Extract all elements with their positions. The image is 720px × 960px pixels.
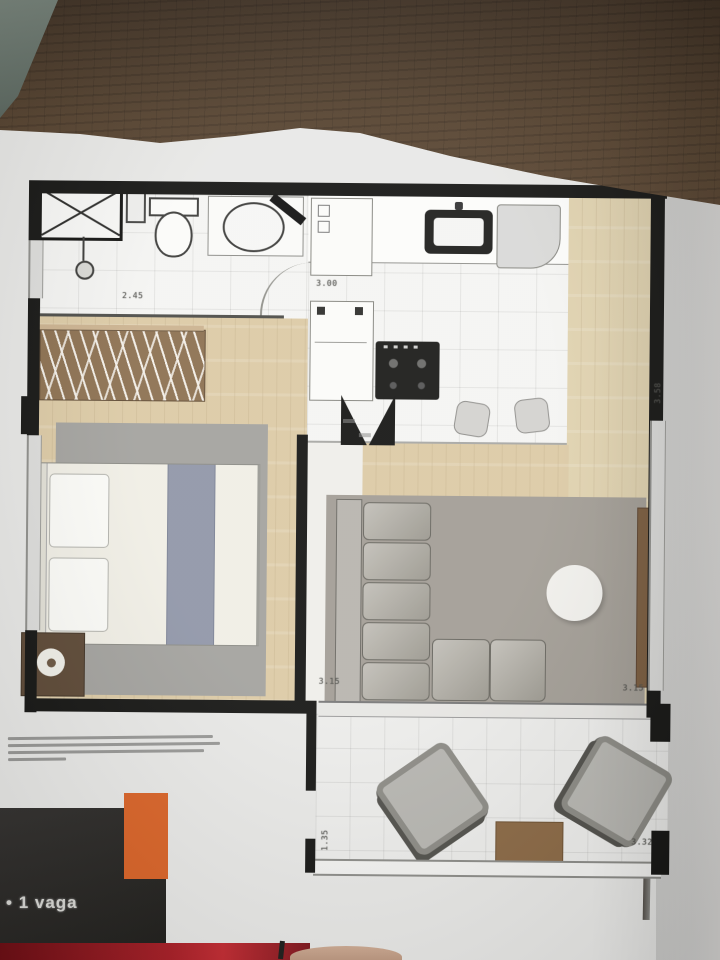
balcony-left-wall xyxy=(306,701,317,791)
kitchen-sink-basin xyxy=(434,218,484,246)
sectional-sofa xyxy=(335,499,549,703)
parking-label: 1 vaga xyxy=(19,893,78,912)
laundry-upper-cabinet xyxy=(310,198,373,277)
dim-label-balcony-width: 3.32 xyxy=(631,837,652,846)
sofa-cushion xyxy=(362,662,430,701)
dim-label-bathroom: 2.45 xyxy=(122,291,143,300)
cabinet-handle xyxy=(318,221,330,233)
finger xyxy=(290,946,402,960)
orange-accent-block xyxy=(124,793,168,879)
vanity-sink xyxy=(222,202,284,253)
wall-stub xyxy=(21,396,30,434)
bed xyxy=(35,462,261,646)
tiny-door-dim-mark xyxy=(359,433,371,437)
sofa-cushion xyxy=(490,639,547,701)
faucet-icon xyxy=(455,202,463,210)
shower-arm xyxy=(82,237,84,261)
shower-drain-icon xyxy=(75,261,94,280)
sofa-cushion xyxy=(362,582,430,621)
cabinet-handle xyxy=(318,205,330,217)
legal-fine-print xyxy=(8,735,220,765)
dim-label-kitchen: 3.00 xyxy=(316,279,337,288)
round-side-table xyxy=(546,565,602,621)
bathroom-window xyxy=(28,240,44,298)
tiny-door-dim-mark xyxy=(343,419,355,423)
balcony-right-step xyxy=(650,704,670,742)
parking-info: • 1 vaga xyxy=(6,893,78,913)
bed-blanket-stripe xyxy=(166,464,216,644)
dim-label-balcony-depth: 1.35 xyxy=(320,830,329,851)
sofa-cushion xyxy=(362,622,430,661)
balcony-sliding-door xyxy=(318,701,652,720)
bedroom-hall-wall xyxy=(295,435,308,703)
balcony-table xyxy=(495,821,563,864)
sofa-cushion xyxy=(363,542,431,581)
sofa-cushion xyxy=(432,639,491,702)
pillow xyxy=(49,473,110,548)
red-book-edge xyxy=(0,943,310,960)
pillow xyxy=(48,557,109,632)
toilet-bowl xyxy=(154,211,192,257)
dim-label-living-right: 3.15 xyxy=(623,683,644,692)
sofa-back xyxy=(335,499,363,703)
balcony-right-corner xyxy=(651,831,669,875)
washer-knob xyxy=(317,307,325,315)
washer-cabinet xyxy=(309,301,374,402)
washer-knob xyxy=(355,307,363,315)
kitchen-sink xyxy=(424,210,492,255)
cooktop xyxy=(375,341,440,400)
wardrobe xyxy=(39,328,206,401)
bottom-wall xyxy=(24,698,306,713)
floor-plan: 2.45 3.00 3.15 3.15 1.35 3.32 3.58 xyxy=(17,180,677,892)
photo-of-floor-plan-page: 2.45 3.00 3.15 3.15 1.35 3.32 3.58 • 1 v… xyxy=(0,0,720,960)
bar-stool xyxy=(452,400,491,439)
table-lamp-center xyxy=(47,658,56,667)
dim-label-right-wall: 3.58 xyxy=(653,382,662,403)
sofa-cushion xyxy=(363,502,431,541)
living-window xyxy=(648,421,666,691)
bedroom-window xyxy=(25,435,42,630)
bullet-icon: • xyxy=(6,893,13,912)
refrigerator xyxy=(496,204,561,269)
dim-label-living-left: 3.15 xyxy=(319,677,340,686)
bar-stool xyxy=(513,397,551,435)
washer-line xyxy=(315,342,367,343)
balcony-railing xyxy=(313,859,661,879)
balcony-left-corner xyxy=(305,839,315,873)
